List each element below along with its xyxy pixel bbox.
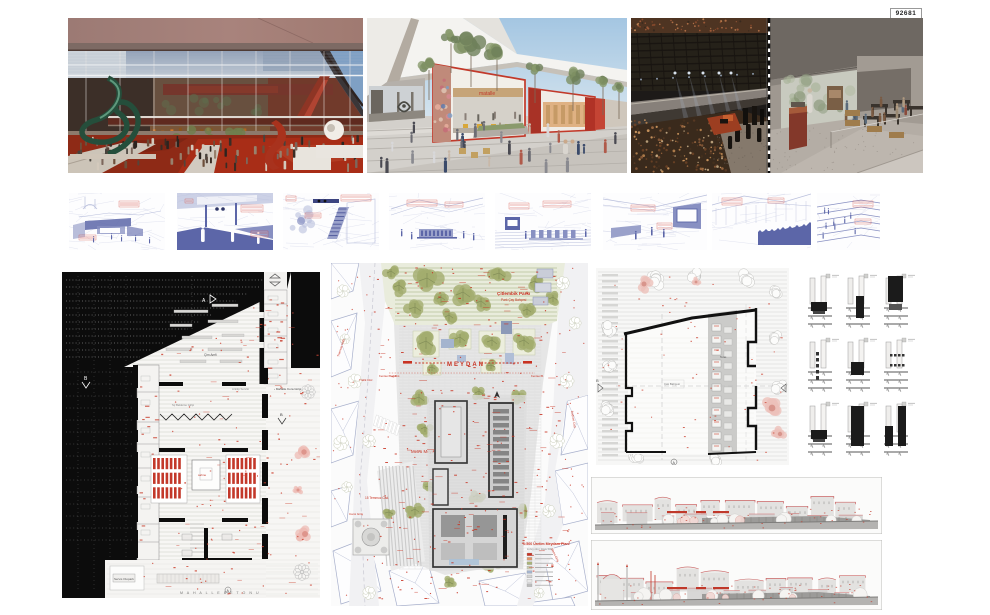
svg-text:Çitlembik Parkı: Çitlembik Parkı [497,291,530,296]
svg-text:Servis Otopark: Servis Otopark [114,577,134,581]
svg-text:Çim Amfi: Çim Amfi [204,353,217,357]
svg-text:15 Temmuz Cad.: 15 Temmuz Cad. [365,496,389,500]
svg-text:Antitip Servisi: Antitip Servisi [232,387,249,391]
svg-text:sahne: sahne [198,473,207,477]
svg-text:Çatı Bahçesi: Çatı Bahçesi [664,382,680,386]
svg-text:Sç Bekleme Girişi: Sç Bekleme Girişi [172,403,194,407]
svg-text:‹ Mahalle Kora Girişi: ‹ Mahalle Kora Girişi [274,387,302,391]
svg-text:Trafik Düz.: Trafik Düz. [359,378,374,382]
svg-text:B: B [596,378,599,383]
svg-text:B: B [280,412,283,417]
svg-text:M A H A L L E B E T O N U: M A H A L L E B E T O N U [180,591,260,595]
svg-text:Teras: Teras [720,355,727,359]
svg-text:Kentsel B.: Kentsel B. [531,374,544,378]
svg-text:MEYDAN: MEYDAN [447,362,485,368]
svg-text:kuzey oku / ölçek 500: kuzey oku / ölçek 500 [527,547,553,551]
svg-text:Park Çay Bahçesi: Park Çay Bahçesi [501,298,527,302]
svg-text:matalle: matalle [479,91,495,97]
svg-text:Kentsel Bağlantı: Kentsel Bağlantı [379,374,400,378]
svg-text:Cami Giriş: Cami Giriş [349,512,363,516]
